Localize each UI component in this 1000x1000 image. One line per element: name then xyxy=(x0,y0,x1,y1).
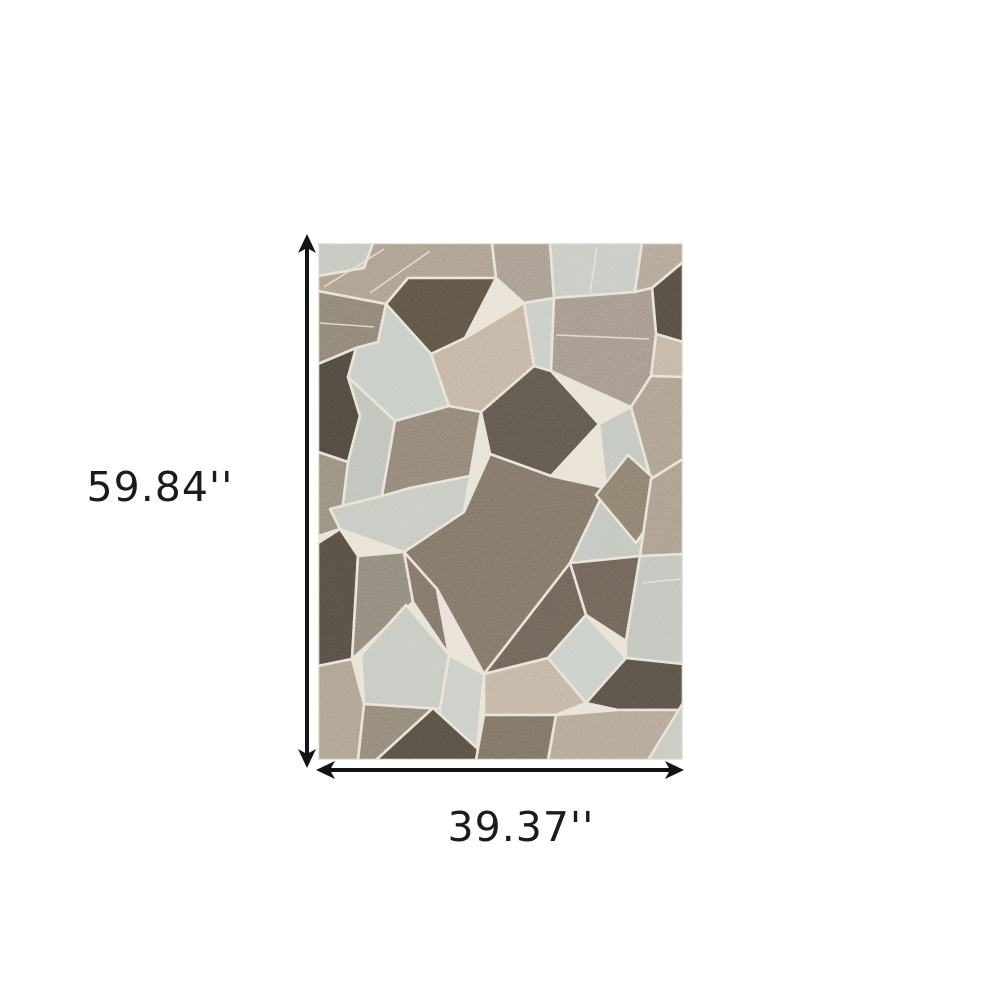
height-dimension-arrow xyxy=(293,232,321,770)
height-dimension-label: 59.84'' xyxy=(87,463,234,511)
rug-image xyxy=(318,243,683,760)
rug-texture-overlay xyxy=(318,243,683,760)
width-dimension-arrow xyxy=(312,756,688,784)
product-dimension-image: 59.84'' 39.37'' xyxy=(0,0,1000,1000)
width-dimension-label: 39.37'' xyxy=(448,803,595,851)
rug-pattern-svg xyxy=(318,243,683,760)
